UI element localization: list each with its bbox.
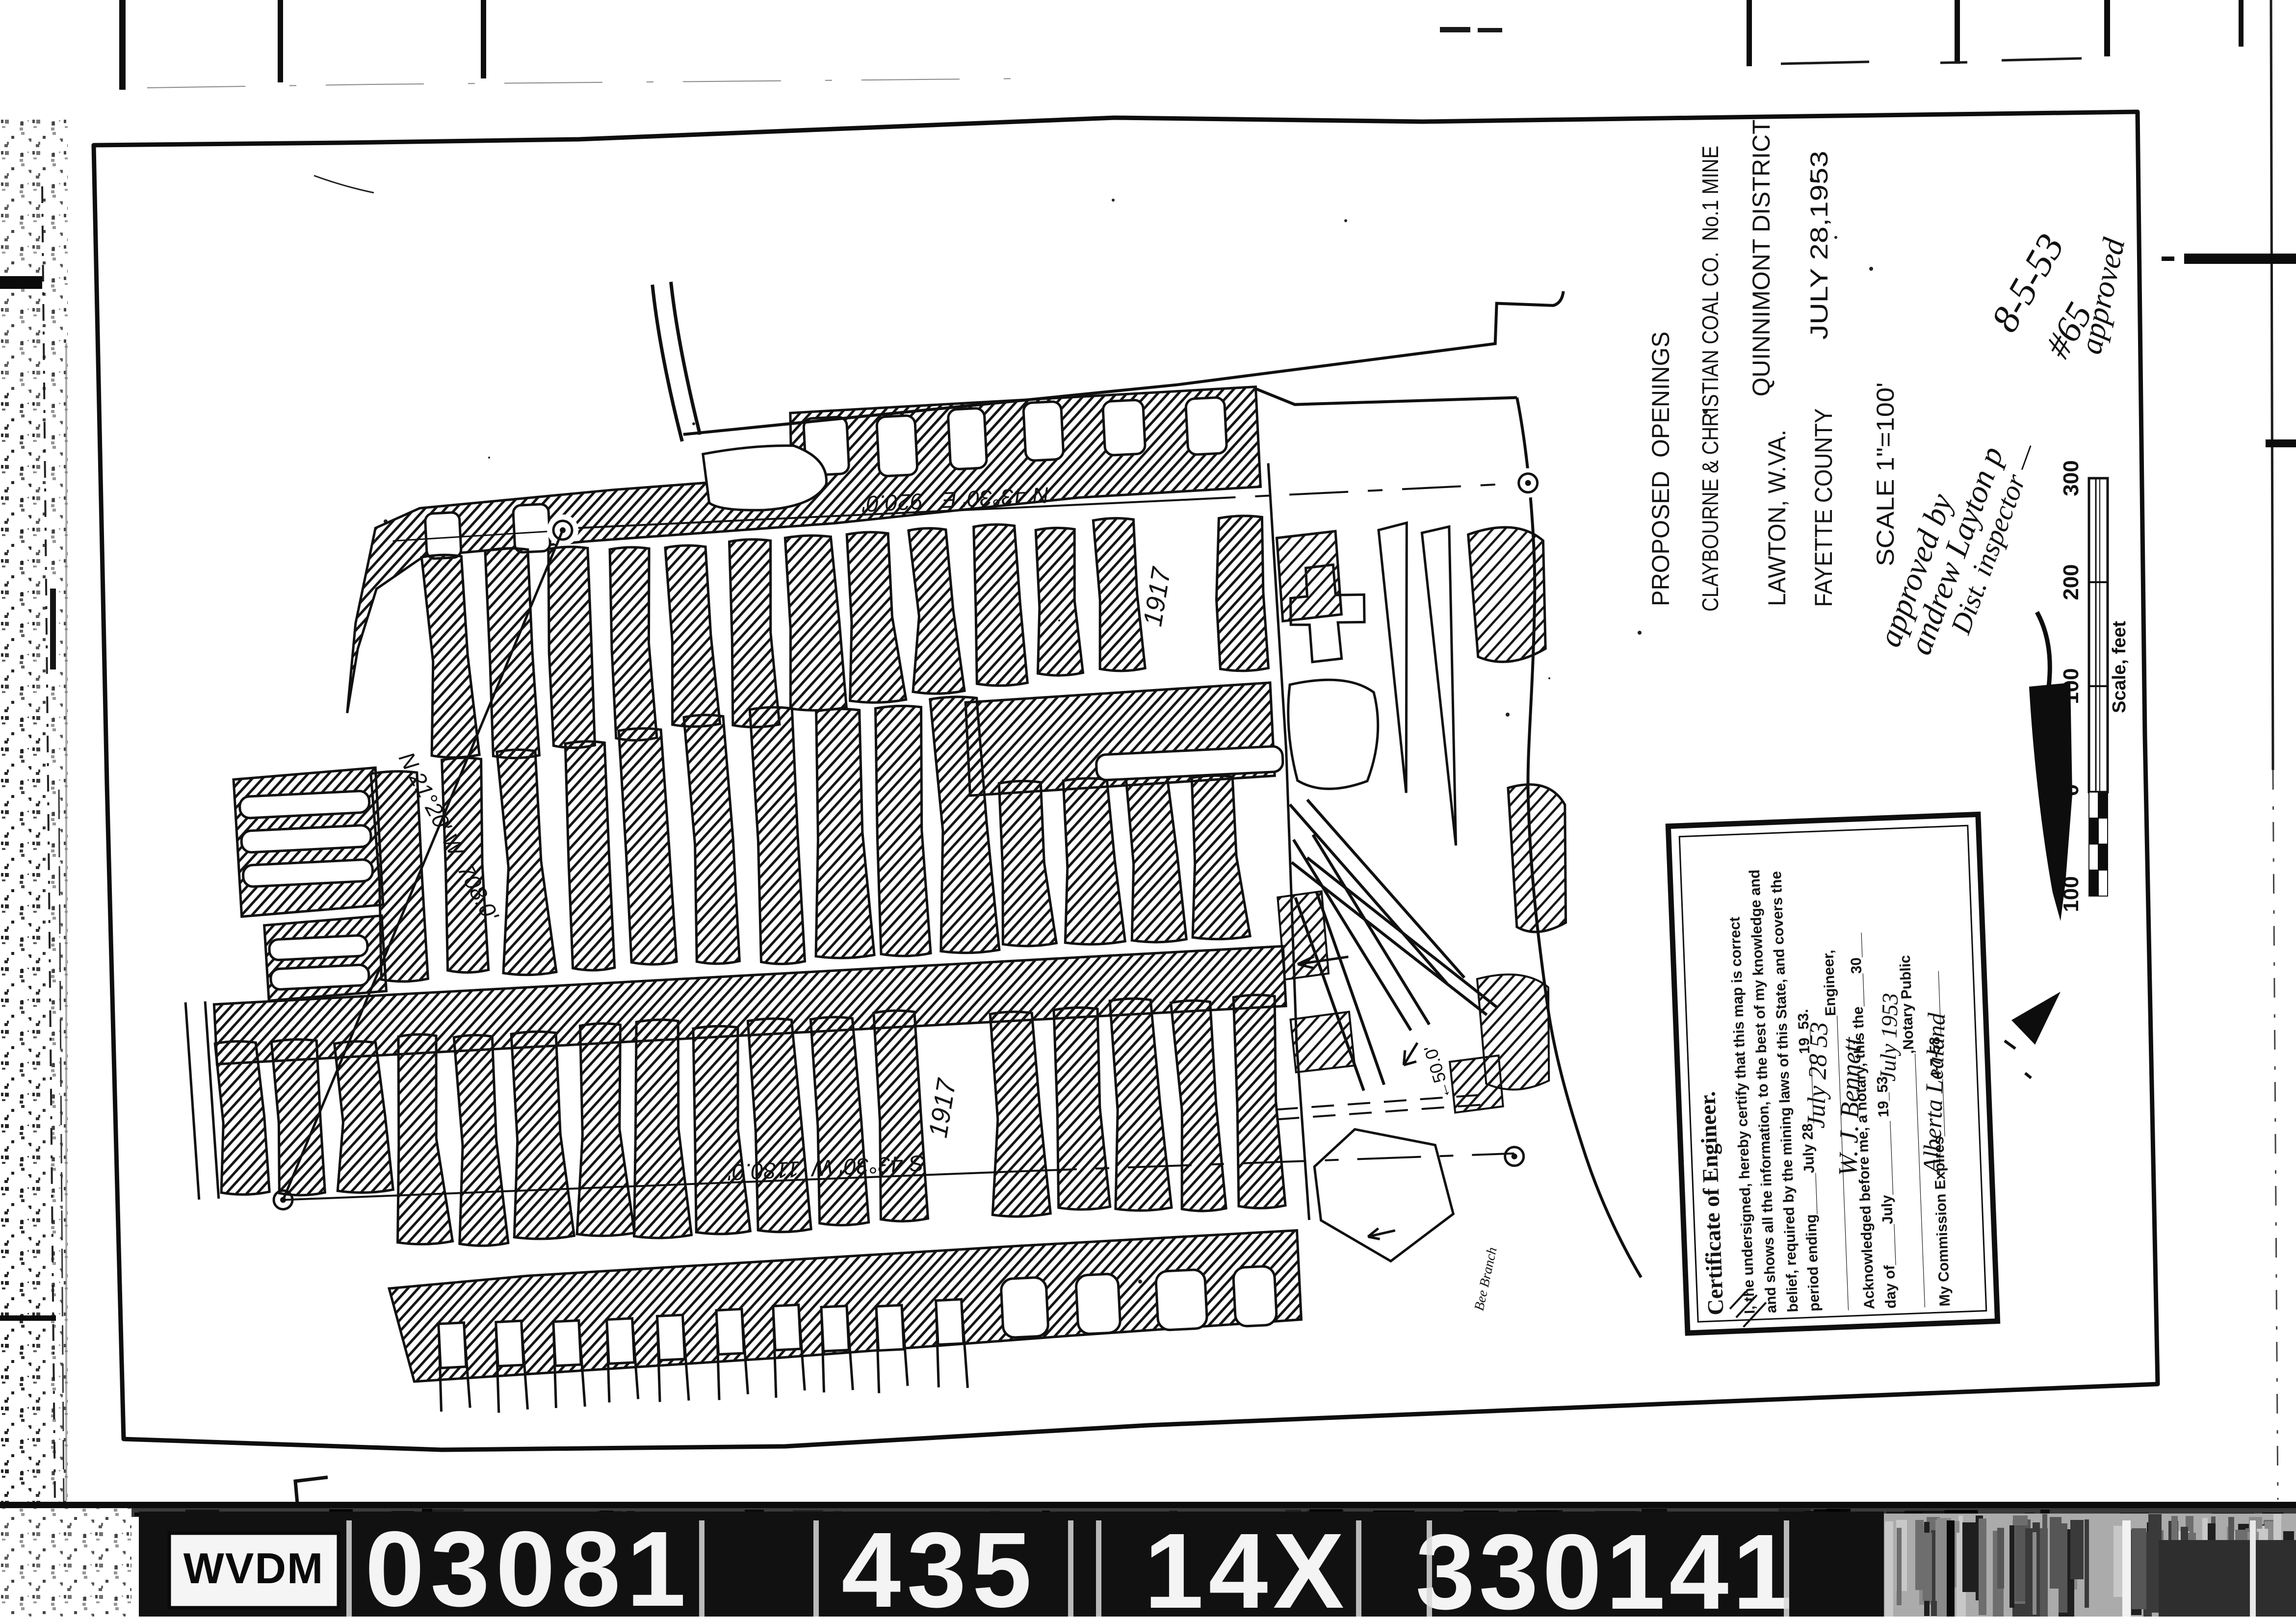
svg-text:SCALE 1"=100': SCALE 1"=100' — [1872, 383, 1899, 566]
svg-text:July 1953: July 1953 — [1875, 993, 1903, 1082]
svg-text:WVDM: WVDM — [183, 1544, 324, 1593]
svg-text:03081: 03081 — [365, 1510, 692, 1617]
svg-text:JULY 28,1953: JULY 28,1953 — [1805, 151, 1833, 340]
svg-text:Scale, feet: Scale, feet — [2109, 621, 2130, 713]
svg-text:July 28 53: July 28 53 — [1802, 1022, 1833, 1129]
svg-text:435: 435 — [841, 1511, 1038, 1617]
svg-text:W. J. Bennett: W. J. Bennett — [1833, 1036, 1867, 1177]
svg-text:PROPOSED OPENINGS: PROPOSED OPENINGS — [1647, 332, 1674, 606]
svg-text:330141: 330141 — [1415, 1513, 1796, 1617]
svg-text:FAYETTE COUNTY: FAYETTE COUNTY — [1810, 409, 1837, 607]
svg-text:QUINNIMONT DISTRICT: QUINNIMONT DISTRICT — [1748, 120, 1775, 397]
svg-text:14X: 14X — [1144, 1512, 1349, 1617]
svg-text:Alberta Lealand: Alberta Lealand — [1918, 1012, 1950, 1175]
svg-text:LAWTON, W.VA.: LAWTON, W.VA. — [1763, 430, 1791, 606]
svg-text:200: 200 — [2059, 564, 2083, 600]
svg-text:300: 300 — [2059, 460, 2083, 496]
svg-text:CLAYBOURNE & CHRISTIAN COAL CO: CLAYBOURNE & CHRISTIAN COAL CO. No.1 MIN… — [1697, 146, 1723, 612]
